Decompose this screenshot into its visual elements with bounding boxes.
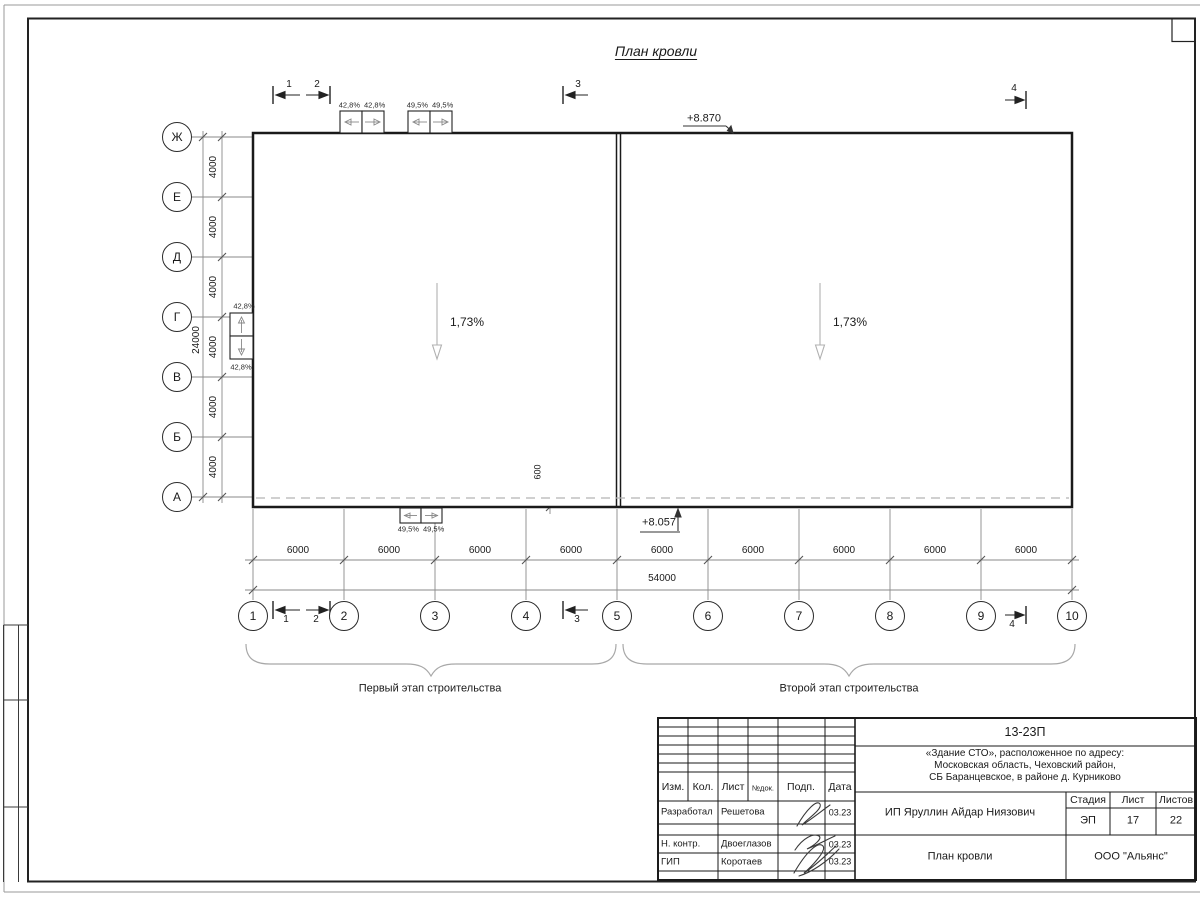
dim-row-bay: 4000 — [209, 456, 219, 478]
titleblock-stage-value: ЭП — [1080, 816, 1096, 827]
corner-stamp-box — [1172, 19, 1195, 42]
slope-label-right: 1,73% — [833, 316, 867, 328]
axis-row-circle: Ж — [162, 122, 192, 152]
axis-col-circle: 10 — [1057, 601, 1087, 631]
axis-row-circle: Е — [162, 182, 192, 212]
stage-label-first: Первый этап строительства — [359, 684, 502, 695]
margin-table — [4, 625, 29, 882]
axis-row-label: Б — [173, 430, 181, 444]
dim-col-bay: 6000 — [651, 546, 673, 556]
dim-col-total: 54000 — [648, 574, 676, 584]
dim-row-bay: 4000 — [209, 216, 219, 238]
axis-row-circle: В — [162, 362, 192, 392]
dim-row-bay: 4000 — [209, 156, 219, 178]
dim-row-bay: 4000 — [209, 336, 219, 358]
axis-col-label: 6 — [705, 609, 712, 623]
axis-col-circle: 7 — [784, 601, 814, 631]
titleblock-sheet-value: 17 — [1127, 816, 1139, 827]
section-mark-label: 1 — [286, 80, 292, 90]
elevation-top-label: +8.870 — [687, 114, 721, 125]
vent-label-left-top: 42,8% — [233, 302, 254, 310]
titleblock-project-line: Московская область, Чеховский район, — [934, 761, 1116, 771]
titleblock-col-data: Дата — [828, 782, 851, 793]
section-mark-label: 1 — [283, 615, 289, 625]
axis-col-circle: 4 — [511, 601, 541, 631]
axis-row-circle: А — [162, 482, 192, 512]
axis-col-label: 5 — [614, 609, 621, 623]
vent-label-top-b: 49,5%49,5% — [407, 101, 454, 109]
slope-label-left: 1,73% — [450, 316, 484, 328]
axis-col-circle: 9 — [966, 601, 996, 631]
dim-col-bay: 6000 — [833, 546, 855, 556]
axis-col-circle: 1 — [238, 601, 268, 631]
titleblock-col-list: Лист — [722, 782, 745, 793]
axis-row-label: Д — [173, 250, 181, 264]
titleblock-date: 03.23 — [829, 809, 852, 818]
dim-col-bay: 6000 — [560, 546, 582, 556]
stage-label-second: Второй этап строительства — [780, 684, 919, 695]
dim-col-bay: 6000 — [924, 546, 946, 556]
elevation-bottom-label: +8.057 — [642, 518, 676, 529]
section-mark-label: 2 — [313, 615, 319, 625]
titleblock-name: Решетова — [721, 807, 765, 817]
vent-percent: 42,8% — [364, 101, 385, 109]
dim-col-bay: 6000 — [469, 546, 491, 556]
vent-label-bottom: 49,5%49,5% — [398, 525, 445, 533]
axis-row-circle: Б — [162, 422, 192, 452]
titleblock-col-izm: Изм. — [662, 782, 685, 793]
axis-col-circle: 6 — [693, 601, 723, 631]
titleblock-name: Двоеглазов — [721, 839, 772, 849]
axis-col-label: 7 — [796, 609, 803, 623]
titleblock-drawing-title: План кровли — [928, 852, 993, 863]
titleblock-client: ИП Яруллин Айдар Ниязович — [885, 808, 1035, 819]
axis-row-label: В — [173, 370, 181, 384]
titleblock-role: Разработал — [661, 807, 713, 817]
vent-percent: 42,8% — [339, 101, 360, 109]
section-mark-label: 4 — [1009, 620, 1015, 630]
axis-row-label: Е — [173, 190, 181, 204]
titleblock-date: 03.23 — [829, 841, 852, 850]
section-mark-label: 4 — [1011, 84, 1017, 94]
titleblock-project-line: «Здание СТО», расположенное по адресу: — [926, 749, 1124, 759]
section-mark-label: 3 — [575, 80, 581, 90]
axis-col-label: 2 — [341, 609, 348, 623]
vent-percent: 49,5% — [432, 101, 453, 109]
axis-col-label: 8 — [887, 609, 894, 623]
dim-overhang: 600 — [534, 464, 543, 479]
drawing-sheet: План кровли Ж Е Д Г В Б А 1 2 3 4 5 6 7 … — [0, 0, 1200, 900]
titleblock-sheets-value: 22 — [1170, 816, 1182, 827]
titleblock-col-podp: Подп. — [787, 782, 815, 793]
axis-row-circle: Г — [162, 302, 192, 332]
titleblock-stage-label: Стадия — [1070, 795, 1106, 806]
titleblock-date: 03.23 — [829, 858, 852, 867]
axis-row-label: Ж — [171, 130, 182, 144]
titleblock-doc-number: 13-23П — [1005, 726, 1046, 739]
axis-col-circle: 5 — [602, 601, 632, 631]
titleblock-sheets-label: Листов — [1159, 795, 1193, 806]
sheet-title: План кровли — [615, 44, 697, 58]
dim-row-total: 24000 — [192, 326, 202, 354]
dim-row-bay: 4000 — [209, 276, 219, 298]
titleblock-sheet-label: Лист — [1122, 795, 1145, 806]
vent-percent: 49,5% — [398, 525, 419, 533]
dim-col-bay: 6000 — [742, 546, 764, 556]
axis-col-circle: 3 — [420, 601, 450, 631]
vent-percent: 49,5% — [423, 525, 444, 533]
roof-vent-left — [230, 313, 253, 359]
vent-percent: 49,5% — [407, 101, 428, 109]
titleblock-company: ООО "Альянс" — [1094, 852, 1168, 863]
titleblock-role: Н. контр. — [661, 839, 700, 849]
roof-outline — [253, 133, 1072, 507]
section-mark-label: 2 — [314, 80, 320, 90]
titleblock-name: Коротаев — [721, 857, 762, 867]
titleblock-role: ГИП — [661, 857, 680, 867]
axis-col-circle: 2 — [329, 601, 359, 631]
axis-row-label: А — [173, 490, 181, 504]
titleblock-col-kol: Кол. — [693, 782, 714, 793]
titleblock-project-line: СБ Баранцевское, в районе д. Курниково — [929, 773, 1121, 783]
axis-col-label: 1 — [250, 609, 257, 623]
axis-row-circle: Д — [162, 242, 192, 272]
dim-col-bay: 6000 — [1015, 546, 1037, 556]
stage-braces — [246, 644, 1075, 676]
dim-col-bay: 6000 — [378, 546, 400, 556]
axis-col-label: 9 — [978, 609, 985, 623]
axis-col-label: 4 — [523, 609, 530, 623]
section-mark-label: 3 — [574, 615, 580, 625]
vent-label-left-bottom: 42,8% — [230, 363, 251, 371]
vent-label-top-a: 42,8%42,8% — [339, 101, 386, 109]
axis-col-label: 3 — [432, 609, 439, 623]
axis-col-circle: 8 — [875, 601, 905, 631]
titleblock-col-ndok: №док. — [752, 784, 774, 792]
dim-row-bay: 4000 — [209, 396, 219, 418]
dim-col-bay: 6000 — [287, 546, 309, 556]
axis-row-label: Г — [174, 310, 181, 324]
axis-col-label: 10 — [1065, 609, 1078, 623]
